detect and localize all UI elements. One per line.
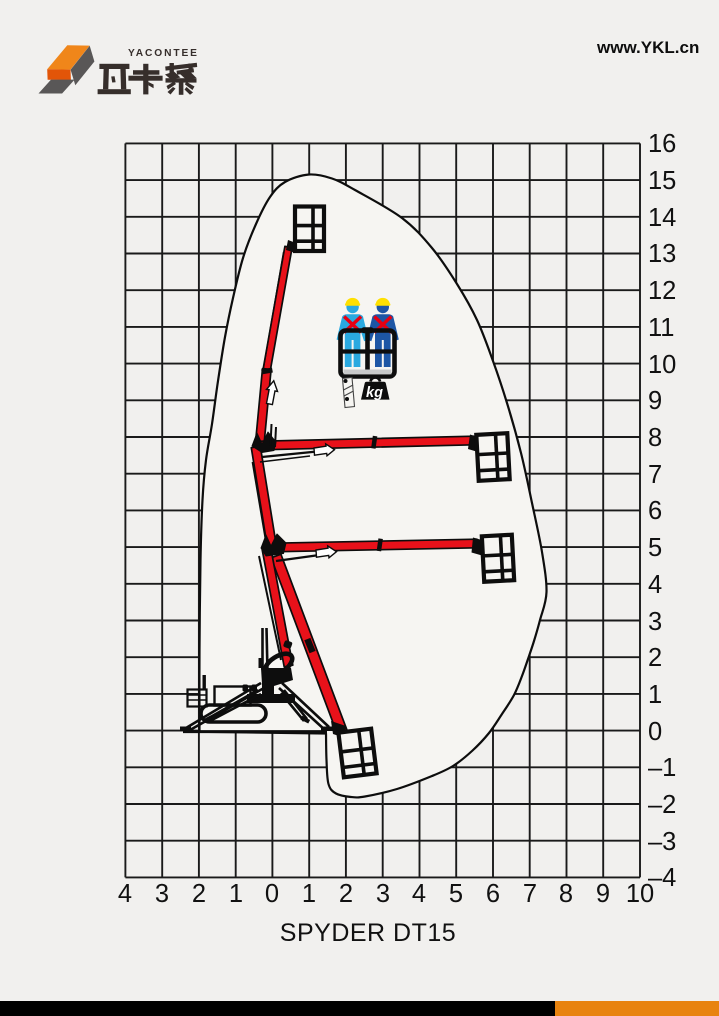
svg-text:2: 2 [339,880,353,908]
svg-text:0: 0 [648,718,662,746]
svg-text:15: 15 [648,167,676,195]
svg-text:16: 16 [648,130,676,158]
svg-text:4: 4 [412,880,426,908]
svg-text:–4: –4 [648,864,676,892]
svg-text:1: 1 [302,880,316,908]
svg-text:–2: –2 [648,791,676,819]
svg-text:5: 5 [449,880,463,908]
svg-text:8: 8 [559,880,573,908]
svg-text:13: 13 [648,240,676,268]
svg-text:3: 3 [155,880,169,908]
svg-text:6: 6 [648,497,662,525]
svg-text:7: 7 [523,880,537,908]
svg-text:10: 10 [648,351,676,379]
svg-text:11: 11 [648,314,674,342]
svg-text:12: 12 [648,277,676,305]
svg-text:3: 3 [648,608,662,636]
svg-text:14: 14 [648,204,676,232]
svg-text:2: 2 [648,644,662,672]
svg-text:1: 1 [229,880,243,908]
svg-text:7: 7 [648,461,662,489]
svg-text:kg: kg [366,385,383,401]
svg-text:SPYDER DT15: SPYDER DT15 [280,919,456,947]
svg-text:1: 1 [648,681,662,709]
svg-text:4: 4 [118,880,132,908]
svg-text:0: 0 [265,880,279,908]
svg-text:9: 9 [596,880,610,908]
svg-text:6: 6 [486,880,500,908]
svg-text:–3: –3 [648,828,676,856]
svg-text:9: 9 [648,387,662,415]
svg-text:4: 4 [648,571,662,599]
svg-text:8: 8 [648,424,662,452]
svg-text:YACONTEE: YACONTEE [128,48,199,59]
svg-text:2: 2 [192,880,206,908]
svg-text:3: 3 [376,880,390,908]
svg-text:www.YKL.cn: www.YKL.cn [596,38,699,57]
svg-text:5: 5 [648,534,662,562]
svg-text:–1: –1 [648,754,676,782]
